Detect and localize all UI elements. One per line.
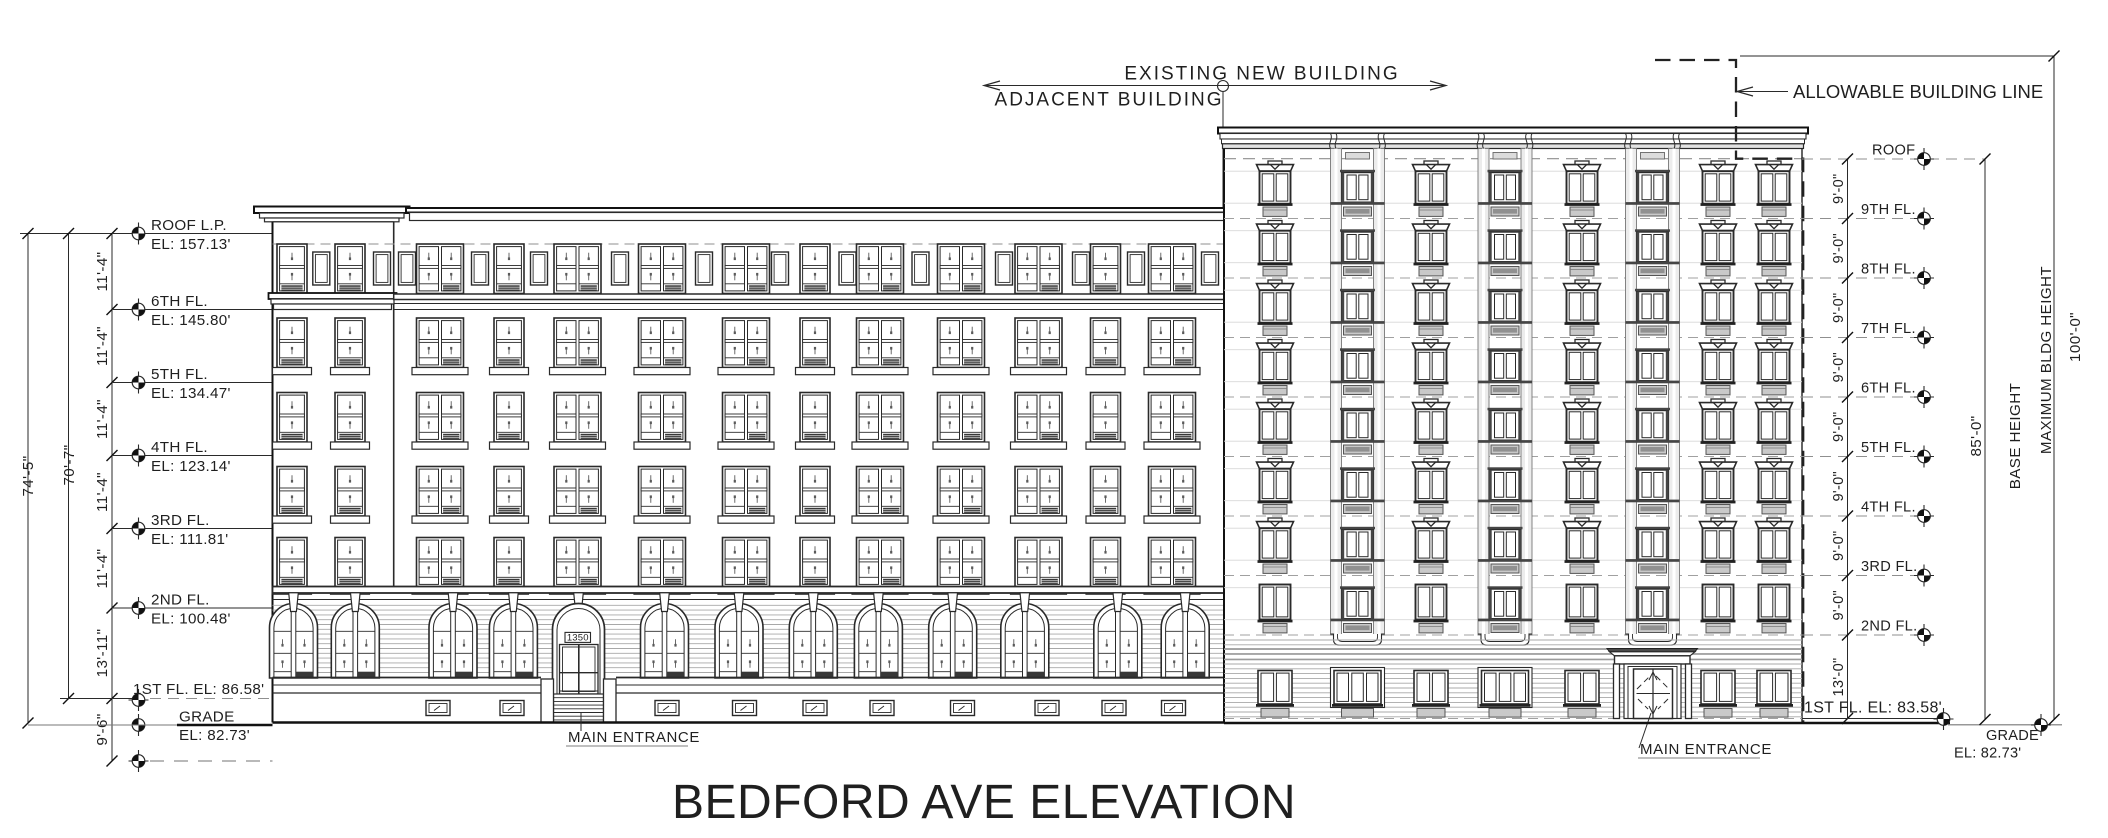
svg-text:7TH FL.: 7TH FL. [1861, 321, 1916, 337]
svg-text:GRADE: GRADE [1986, 728, 2039, 744]
svg-text:9'-0": 9'-0" [1831, 233, 1847, 264]
svg-text:4TH FL.: 4TH FL. [151, 439, 208, 456]
svg-text:70'-7": 70'-7" [61, 444, 78, 485]
svg-text:11'-4": 11'-4" [94, 326, 111, 366]
svg-text:ROOF: ROOF [1872, 143, 1915, 159]
svg-text:EL: 111.81': EL: 111.81' [151, 531, 228, 548]
svg-text:5TH FL.: 5TH FL. [1861, 440, 1916, 456]
svg-text:6TH FL.: 6TH FL. [1861, 381, 1916, 397]
svg-text:9'-0": 9'-0" [1831, 590, 1847, 621]
svg-text:9'-6": 9'-6" [94, 713, 111, 745]
svg-text:MAIN ENTRANCE: MAIN ENTRANCE [1640, 741, 1772, 758]
svg-text:9'-0": 9'-0" [1831, 173, 1847, 204]
svg-text:1ST FL. EL: 86.58': 1ST FL. EL: 86.58' [133, 681, 264, 698]
svg-text:1ST FL. EL: 83.58': 1ST FL. EL: 83.58' [1804, 700, 1942, 717]
svg-text:BASE HEIGHT: BASE HEIGHT [2007, 383, 2024, 490]
svg-text:13'-0": 13'-0" [1831, 658, 1847, 697]
svg-text:EL: 134.47': EL: 134.47' [151, 385, 231, 402]
svg-text:EL: 100.48': EL: 100.48' [151, 611, 231, 628]
svg-text:EL: 145.80': EL: 145.80' [151, 312, 231, 329]
svg-text:9'-0": 9'-0" [1831, 292, 1847, 323]
svg-text:ADJACENT BUILDING: ADJACENT BUILDING [995, 90, 1224, 111]
svg-text:9'-0": 9'-0" [1831, 411, 1847, 442]
svg-text:9TH FL.: 9TH FL. [1861, 202, 1916, 218]
svg-text:EL: 157.13': EL: 157.13' [151, 236, 231, 253]
svg-text:3RD FL.: 3RD FL. [151, 512, 210, 529]
svg-text:2ND FL.: 2ND FL. [151, 592, 210, 609]
svg-text:GRADE: GRADE [179, 709, 235, 726]
svg-text:85'-0": 85'-0" [1968, 415, 1985, 456]
svg-text:1350: 1350 [567, 633, 589, 644]
svg-text:EL: 82.73': EL: 82.73' [179, 727, 250, 744]
svg-text:11'-4": 11'-4" [94, 252, 111, 292]
svg-text:EXISTING NEW BUILDING: EXISTING NEW BUILDING [1124, 64, 1399, 85]
svg-text:9'-0": 9'-0" [1831, 530, 1847, 561]
svg-text:MAIN ENTRANCE: MAIN ENTRANCE [568, 729, 700, 746]
svg-text:8TH FL.: 8TH FL. [1861, 262, 1916, 278]
svg-text:100'-0": 100'-0" [2067, 312, 2084, 362]
svg-text:74'-5": 74'-5" [20, 455, 37, 496]
svg-text:ALLOWABLE BUILDING LINE: ALLOWABLE BUILDING LINE [1793, 81, 2043, 102]
svg-text:4TH FL.: 4TH FL. [1861, 500, 1916, 516]
svg-text:EL: 82.73': EL: 82.73' [1954, 746, 2021, 762]
svg-text:11'-4": 11'-4" [94, 399, 111, 439]
svg-text:EL: 123.14': EL: 123.14' [151, 458, 231, 475]
svg-text:6TH FL.: 6TH FL. [151, 293, 208, 310]
svg-text:9'-0": 9'-0" [1831, 352, 1847, 383]
svg-text:BEDFORD AVE ELEVATION: BEDFORD AVE ELEVATION [672, 776, 1296, 829]
svg-text:11'-4": 11'-4" [94, 549, 111, 589]
svg-text:2ND FL.: 2ND FL. [1861, 619, 1917, 635]
svg-text:ROOF L.P.: ROOF L.P. [151, 217, 227, 234]
svg-text:3RD FL.: 3RD FL. [1861, 559, 1917, 575]
svg-text:11'-4": 11'-4" [94, 472, 111, 512]
svg-text:13'-11": 13'-11" [94, 629, 111, 678]
svg-text:9'-0": 9'-0" [1831, 471, 1847, 502]
svg-text:5TH FL.: 5TH FL. [151, 366, 208, 383]
svg-text:MAXIMUM BLDG HEIGHT: MAXIMUM BLDG HEIGHT [2038, 266, 2055, 454]
